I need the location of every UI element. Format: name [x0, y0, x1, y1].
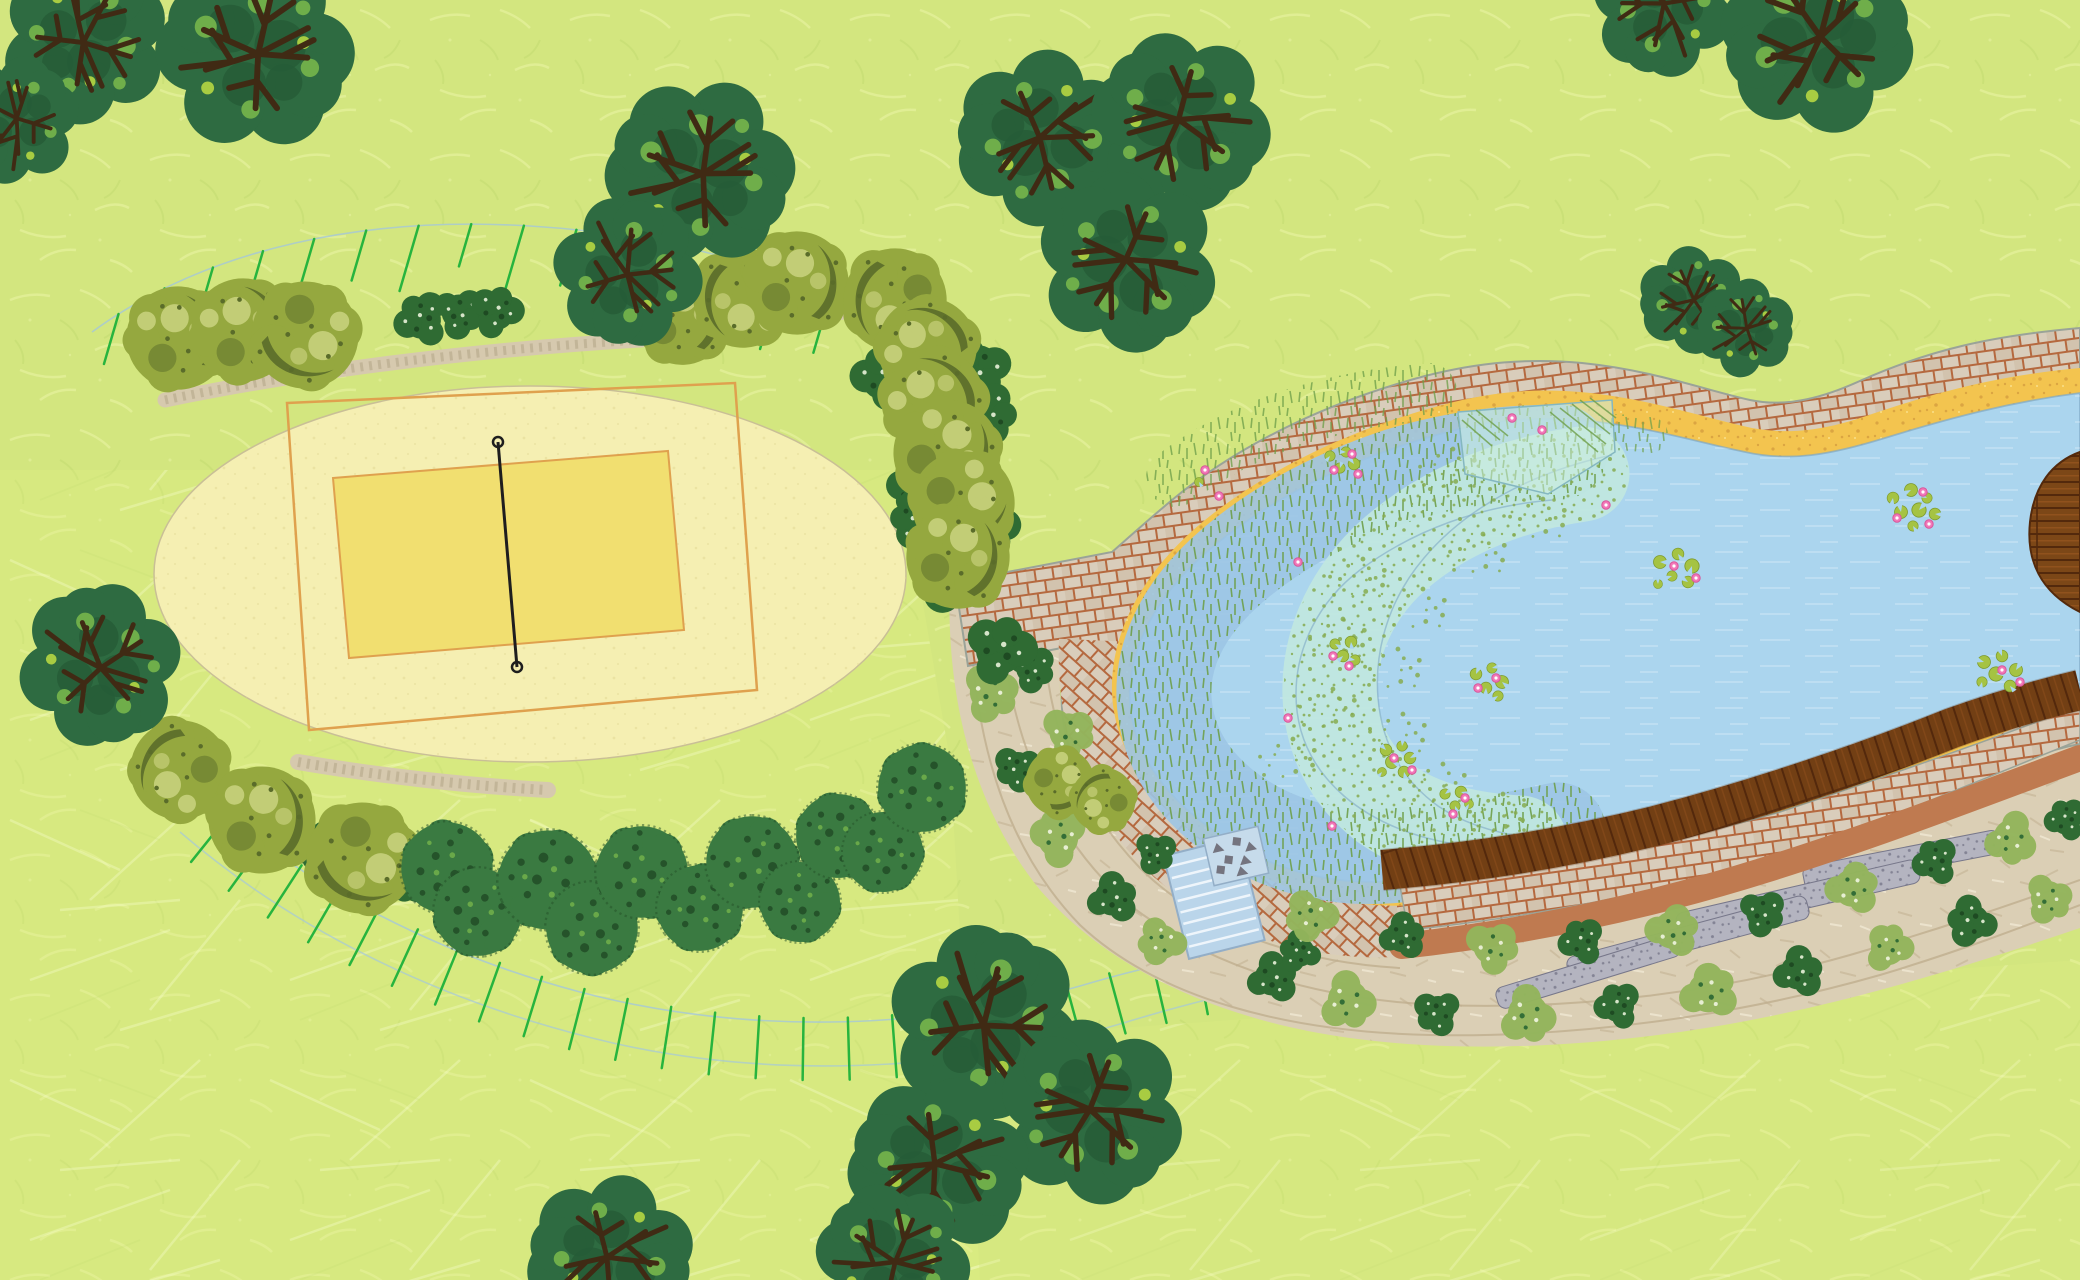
- lily-flower: [1294, 558, 1302, 566]
- lily-flower: [1998, 666, 2006, 674]
- lily-flower: [1284, 714, 1292, 722]
- lily-flower: [1919, 488, 1927, 496]
- sand-volleyball-court: [154, 383, 906, 762]
- lily-flower: [1670, 562, 1678, 570]
- site-plan-drawing: [0, 0, 2080, 1280]
- lily-flower: [1449, 810, 1457, 818]
- lily-flower: [1354, 470, 1362, 478]
- lily-flower: [1538, 426, 1546, 434]
- lily-flower: [1925, 520, 1933, 528]
- lily-flower: [1345, 662, 1353, 670]
- lily-flower: [1330, 466, 1338, 474]
- lily-flower: [1893, 514, 1901, 522]
- lily-flower: [1329, 652, 1337, 660]
- lily-flower: [1602, 501, 1610, 509]
- lily-flower: [2016, 678, 2024, 686]
- lily-flower: [1201, 466, 1209, 474]
- lily-flower: [1348, 450, 1356, 458]
- lily-flower: [1492, 674, 1500, 682]
- hatch-tick: [803, 1018, 804, 1080]
- lily-flower: [1328, 822, 1336, 830]
- lily-flower: [1408, 766, 1416, 774]
- landscape-plan: [0, 0, 2080, 1280]
- lily-flower: [1692, 574, 1700, 582]
- lily-flower: [1215, 492, 1223, 500]
- lily-flower: [1390, 754, 1398, 762]
- lily-flower: [1461, 794, 1469, 802]
- lily-flower: [1508, 414, 1516, 422]
- lily-flower: [1474, 684, 1482, 692]
